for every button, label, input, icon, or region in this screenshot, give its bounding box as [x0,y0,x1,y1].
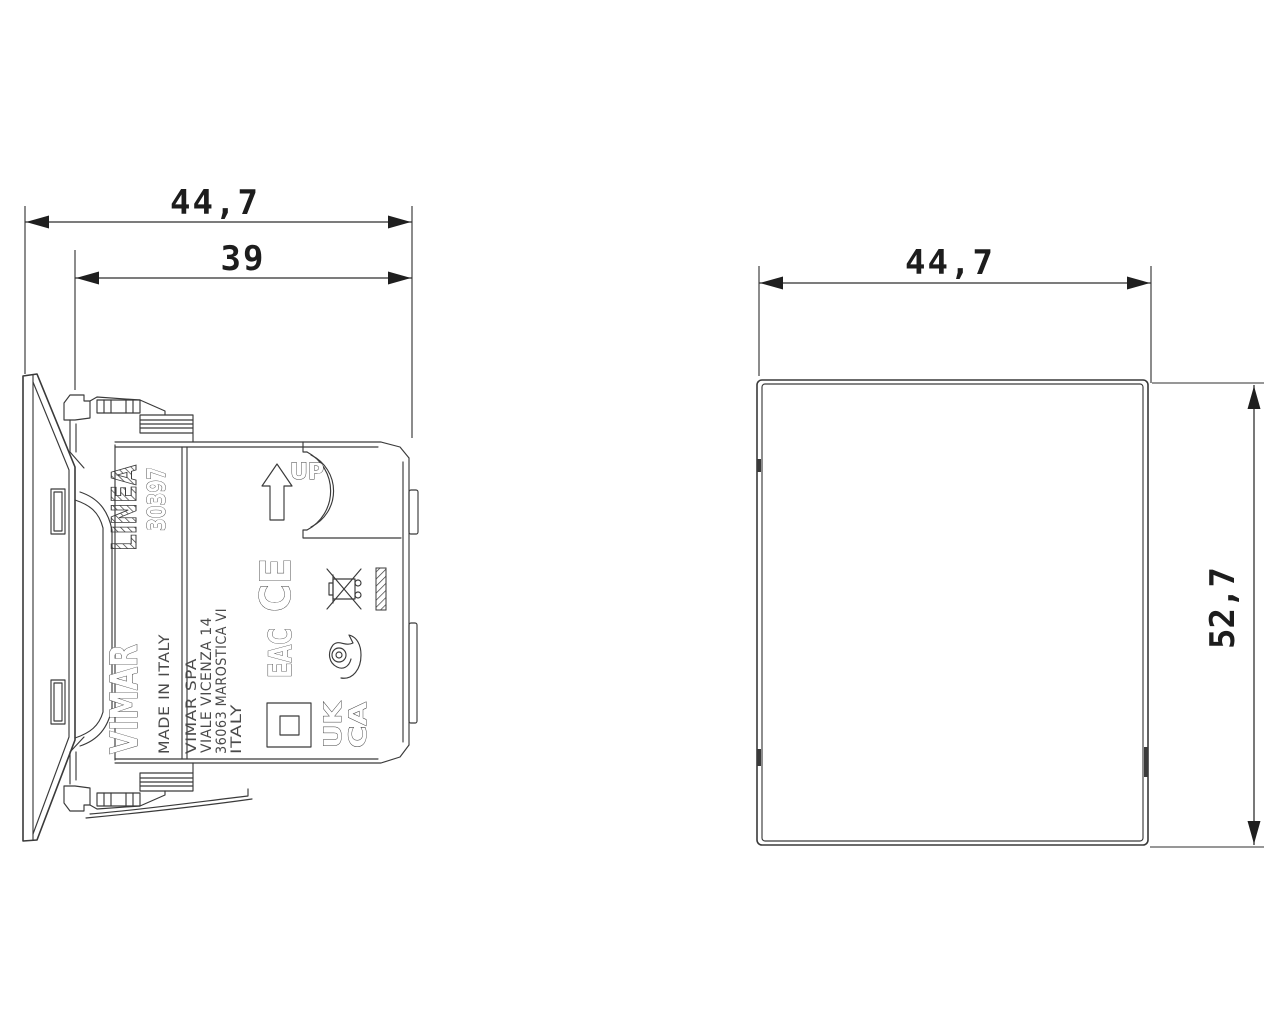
plate-face [757,380,1148,845]
recess-bottom-line [303,530,401,538]
dim-arrow-top [1248,386,1261,409]
side-view: 44,7 39 [23,183,418,841]
address-line-1: VIMAR SPA [184,658,200,754]
body-right-edge [403,458,409,745]
neck-outer-curve [75,500,103,738]
front-plate [23,374,75,841]
dim-arrow-bottom [1248,821,1261,844]
dim-height: 52,7 [1150,383,1264,847]
plate-face-outline [757,380,1148,845]
weee-bar-icon [376,568,386,610]
top-clip [64,395,193,442]
plate-inner-profile [33,382,69,834]
clip-ribs-top [104,400,133,413]
dim-overall-depth: 44,7 [25,183,412,438]
clip-ratchet-lines-bottom [140,778,193,786]
rear-tab-lower [409,623,417,723]
dim-arrow-left [76,272,99,285]
weee-bin-icon [327,569,361,609]
address-line-4: ITALY [229,704,245,754]
dim-mounting-depth: 39 [75,239,412,390]
series-text: LINEA [105,464,145,551]
product-code-text: 30397 [142,467,171,531]
body-top-edge [115,442,409,458]
address-line-3: 36063 MAROSTICA VI [214,608,230,754]
edge-notch-left-upper [757,459,761,472]
dim-label-overall-depth: 44,7 [170,183,260,223]
plate-slot-lower-inner [54,683,62,721]
made-in-text: MADE IN ITALY [157,634,173,754]
clip-hook-top [64,395,90,420]
front-view: 44,7 52,7 [757,243,1264,847]
certification-mark-icon [330,635,361,678]
eac-mark-text: EAC [263,628,299,678]
neck-bottom-step [70,737,84,784]
clip-slant-bottom [140,791,165,806]
ukca-mark-uk-text: UK [319,700,347,748]
dim-arrow-left [760,277,783,290]
dim-width: 44,7 [759,243,1151,383]
rear-tab-upper [409,490,418,534]
bottom-clip [64,763,252,818]
dim-label-height: 52,7 [1203,567,1243,649]
dim-label-mounting-depth: 39 [221,239,266,279]
plate-face-inner [762,384,1143,841]
clip-hook-bottom [64,786,90,811]
address-line-2: VIALE VICENZA 14 [199,617,215,753]
clip-slant-top [140,400,165,415]
body-markings: LINEA 30397 VIMAR MADE IN ITALY VIMAR SP… [103,460,386,754]
dim-label-width: 44,7 [905,243,995,283]
class2-insulation-icon [267,703,311,747]
plate-slot-upper-inner [54,492,62,531]
plate-outline [23,374,75,841]
up-arrow-icon [262,464,292,520]
ukca-mark-ca-text: CA [344,701,372,748]
dim-arrow-right [388,216,411,229]
technical-drawing-page: 44,7 39 [0,0,1280,1024]
body-recess [303,442,401,538]
edge-notch-left-lower [757,749,761,766]
dim-arrow-left [26,216,49,229]
edge-notch-right [1144,747,1148,777]
dim-arrow-right [388,272,411,285]
dim-arrow-right [1127,277,1150,290]
brand-text: VIMAR [103,644,146,754]
plate-slot-upper [51,489,65,534]
clip-ribs-bottom [104,793,133,806]
drawing-canvas: 44,7 39 [0,0,1280,1024]
plate-slot-lower [51,680,65,724]
ce-mark-text: CE [251,558,300,612]
up-label: UP [290,460,324,485]
clip-ratchet-lines-top [140,420,193,428]
